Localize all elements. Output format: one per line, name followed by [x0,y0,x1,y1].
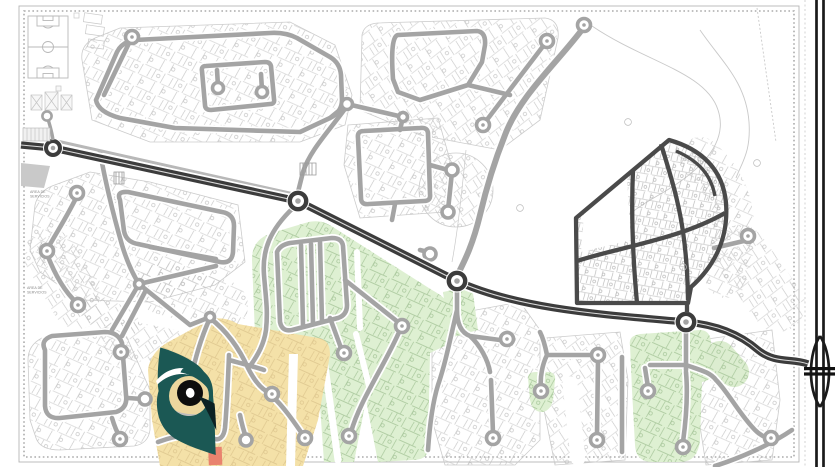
svg-text:SERVICIOS: SERVICIOS [30,195,50,199]
svg-text:SERVICIOS: SERVICIOS [27,291,47,295]
svg-text:AREA DE: AREA DE [27,286,43,290]
svg-text:AREA DE: AREA DE [30,190,46,194]
